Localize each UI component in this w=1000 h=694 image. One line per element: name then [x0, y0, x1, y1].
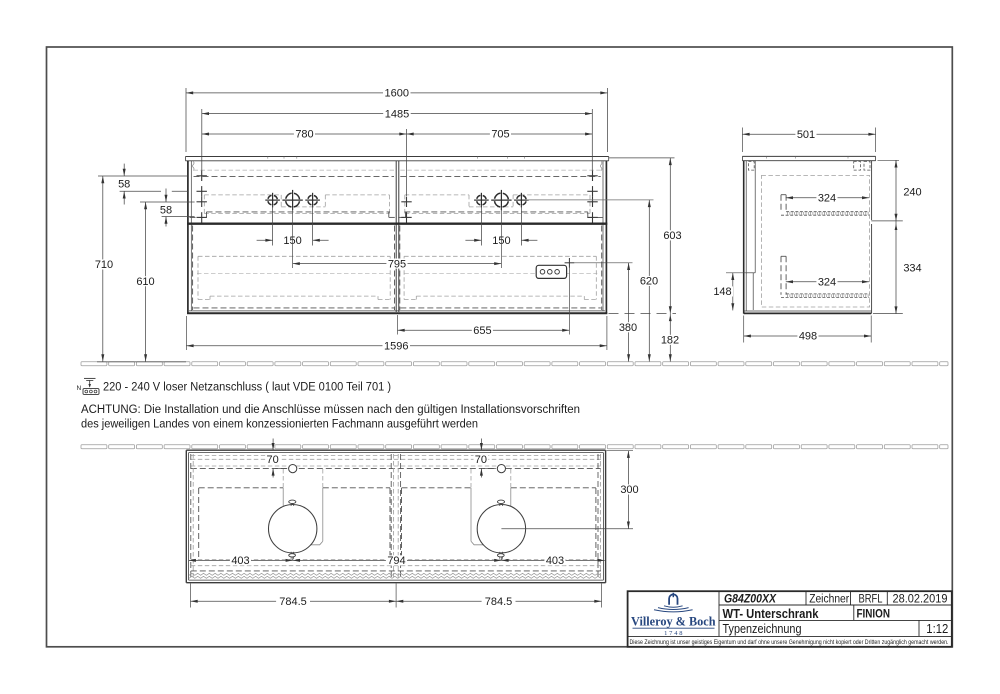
- svg-text:655: 655: [473, 325, 491, 337]
- svg-text:1:12: 1:12: [926, 621, 948, 636]
- svg-text:710: 710: [95, 259, 113, 271]
- svg-text:620: 620: [640, 276, 658, 288]
- svg-text:28.02.2019: 28.02.2019: [893, 593, 948, 605]
- svg-text:Zeichner: Zeichner: [809, 593, 849, 605]
- svg-text:324: 324: [818, 193, 836, 205]
- svg-text:603: 603: [663, 230, 681, 242]
- svg-text:498: 498: [799, 331, 817, 343]
- svg-text:58: 58: [118, 178, 130, 190]
- svg-text:Diese Zeichnung ist unser geis: Diese Zeichnung ist unser geistiges Eige…: [630, 639, 949, 646]
- svg-text:FINION: FINION: [857, 607, 891, 621]
- svg-text:148: 148: [713, 286, 731, 298]
- svg-text:1600: 1600: [385, 88, 409, 100]
- svg-text:705: 705: [491, 129, 509, 141]
- svg-text:300: 300: [620, 484, 638, 496]
- svg-text:des jeweiligen Landes von eine: des jeweiligen Landes von einem konzessi…: [81, 417, 478, 431]
- svg-text:Typenzeichnung: Typenzeichnung: [723, 621, 802, 636]
- svg-text:58: 58: [160, 205, 172, 217]
- svg-text:795: 795: [388, 258, 406, 270]
- svg-text:403: 403: [546, 555, 564, 567]
- svg-text:334: 334: [903, 263, 921, 275]
- svg-text:1748: 1748: [664, 630, 684, 637]
- svg-text:ACHTUNG: Die Installation und: ACHTUNG: Die Installation und die Anschl…: [81, 402, 580, 416]
- svg-text:Villeroy & Boch: Villeroy & Boch: [631, 615, 716, 629]
- svg-text:324: 324: [818, 277, 836, 289]
- svg-text:794: 794: [387, 555, 405, 567]
- svg-text:240: 240: [903, 187, 921, 199]
- svg-text:WT- Unterschrank: WT- Unterschrank: [723, 607, 819, 621]
- svg-text:70: 70: [475, 454, 487, 466]
- svg-text:1596: 1596: [384, 341, 408, 353]
- svg-text:70: 70: [266, 454, 278, 466]
- svg-text:784.5: 784.5: [279, 596, 307, 608]
- svg-text:1485: 1485: [385, 108, 409, 120]
- svg-text:G84Z00XX: G84Z00XX: [724, 591, 777, 605]
- svg-text:784.5: 784.5: [485, 596, 513, 608]
- svg-text:501: 501: [797, 129, 815, 141]
- svg-text:610: 610: [136, 276, 154, 288]
- svg-text:182: 182: [661, 335, 679, 347]
- svg-text:780: 780: [295, 129, 313, 141]
- svg-text:403: 403: [231, 555, 249, 567]
- svg-text:380: 380: [619, 322, 637, 334]
- svg-text:N: N: [77, 385, 82, 392]
- svg-text:220 - 240 V loser Netzanschlus: 220 - 240 V loser Netzanschluss ( laut V…: [103, 379, 391, 393]
- svg-text:BRFL: BRFL: [859, 593, 883, 605]
